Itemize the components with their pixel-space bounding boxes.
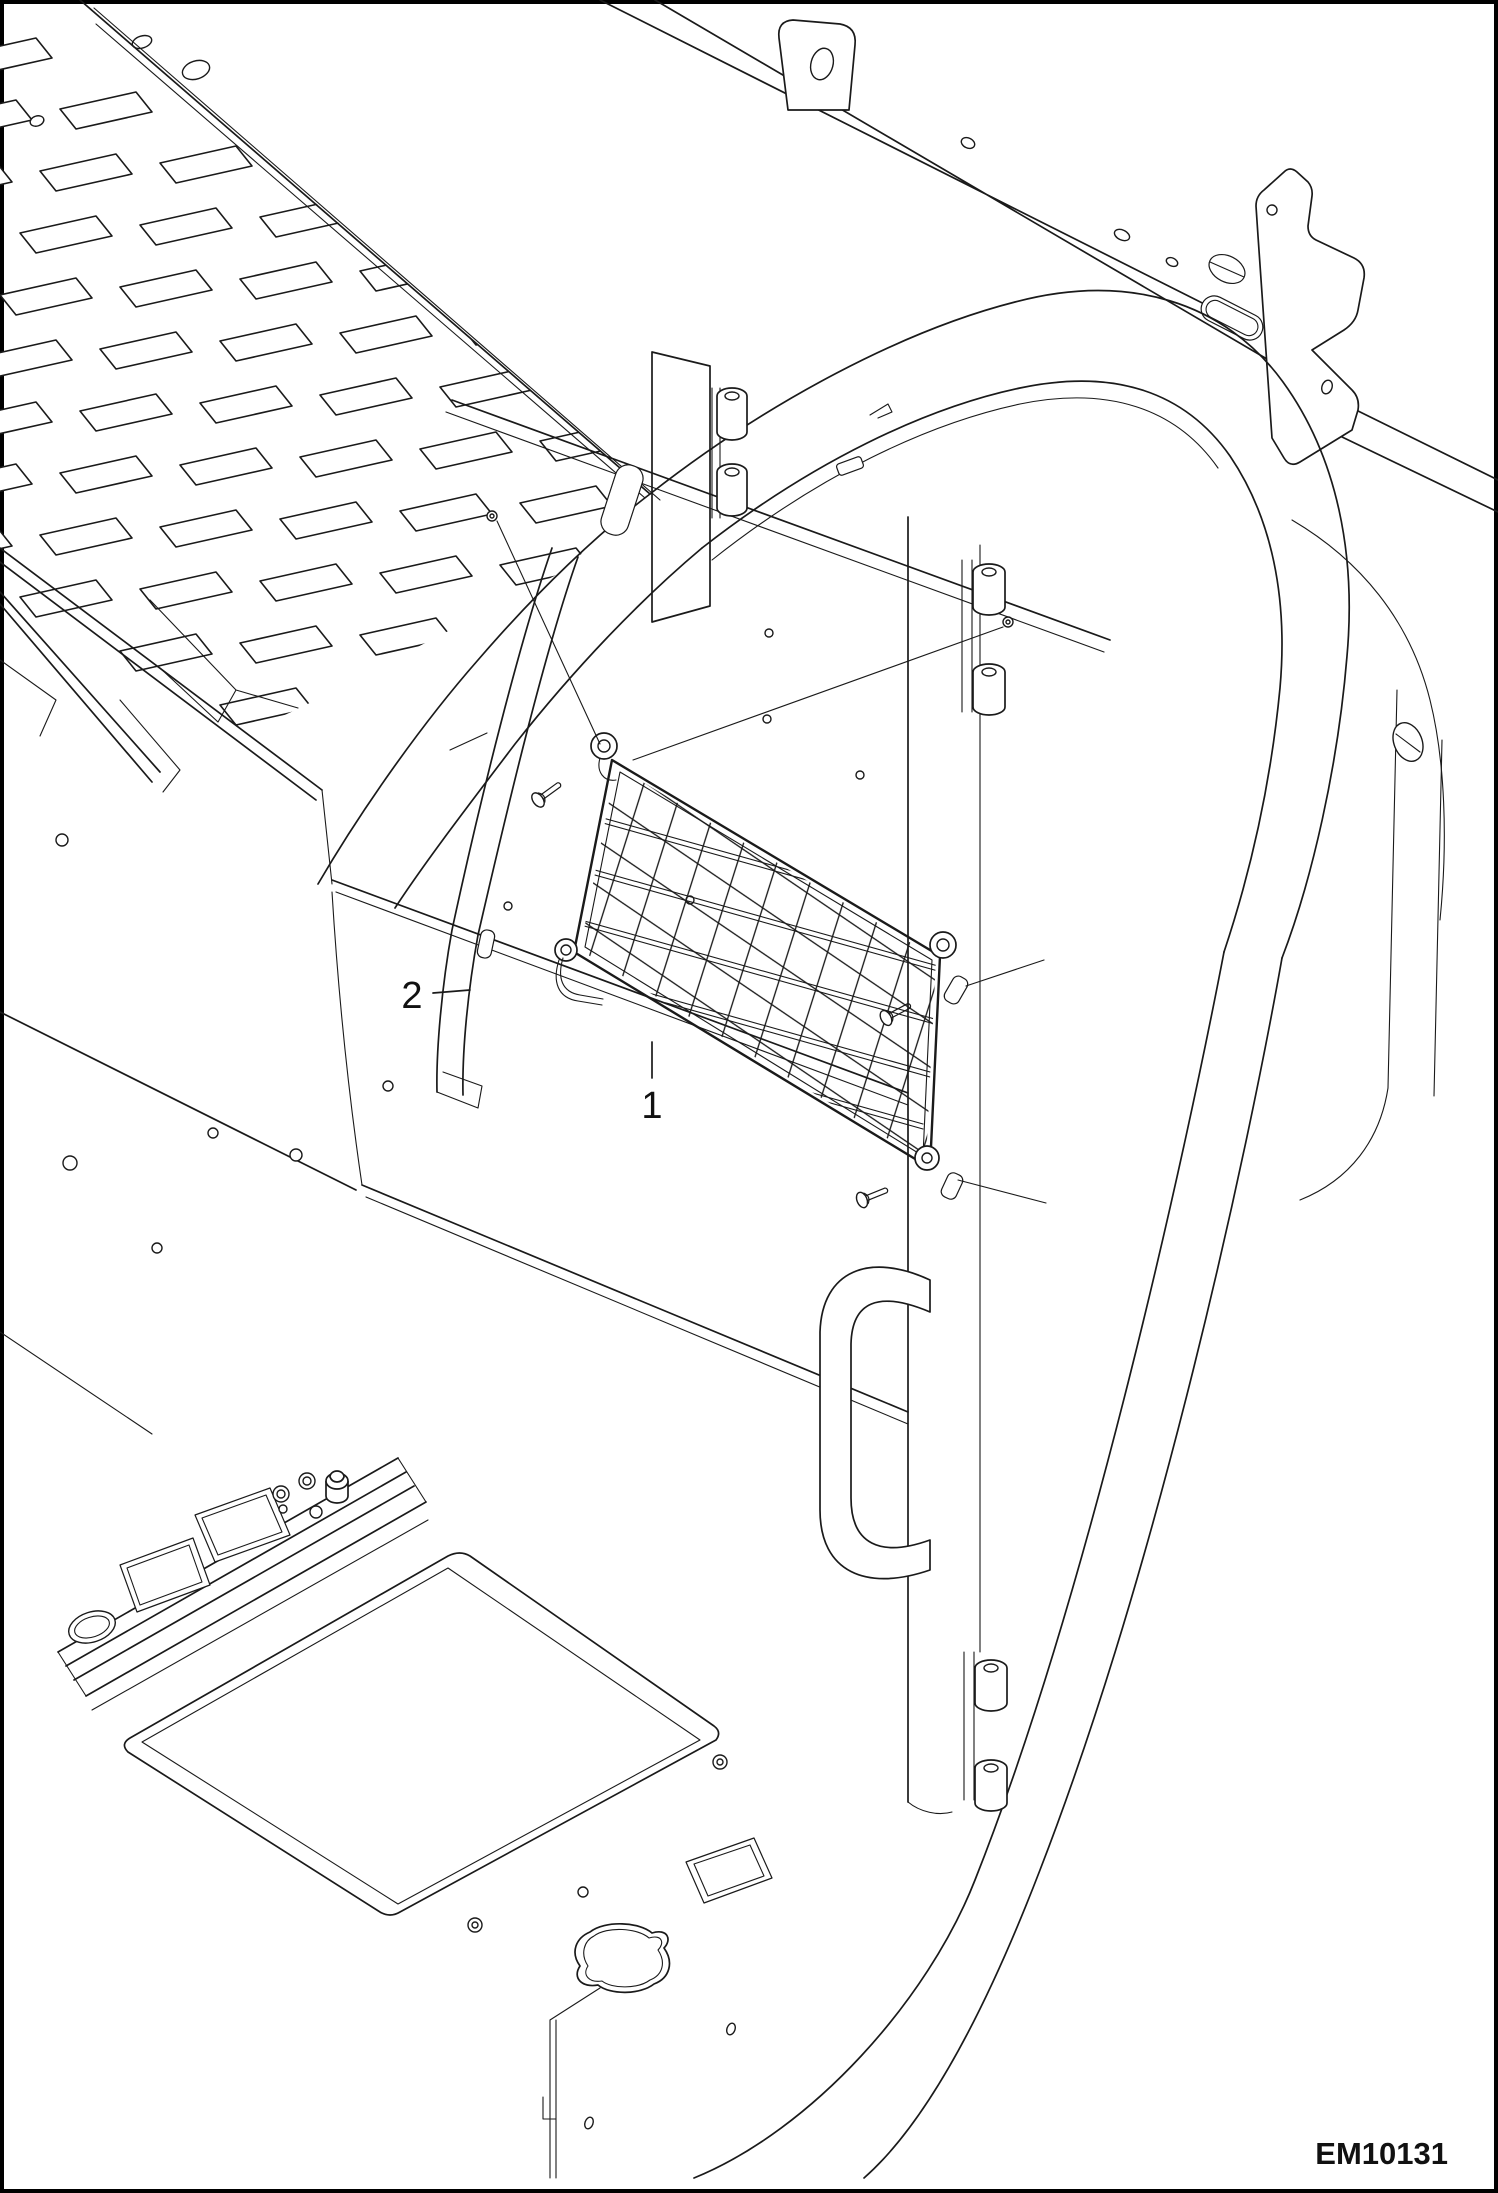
- callout-2-label: 2: [401, 975, 422, 1017]
- callout-1-label: 1: [641, 1085, 662, 1127]
- cab-frame-parts-diagram: 2 1 EM10131: [0, 0, 1498, 2193]
- lifting-eye-bracket: [779, 20, 855, 110]
- bump-stop-knob: [326, 1471, 348, 1503]
- drawing-id: EM10131: [1315, 2136, 1448, 2171]
- parts-diagram-page: 2 1 EM10131: [0, 0, 1498, 2193]
